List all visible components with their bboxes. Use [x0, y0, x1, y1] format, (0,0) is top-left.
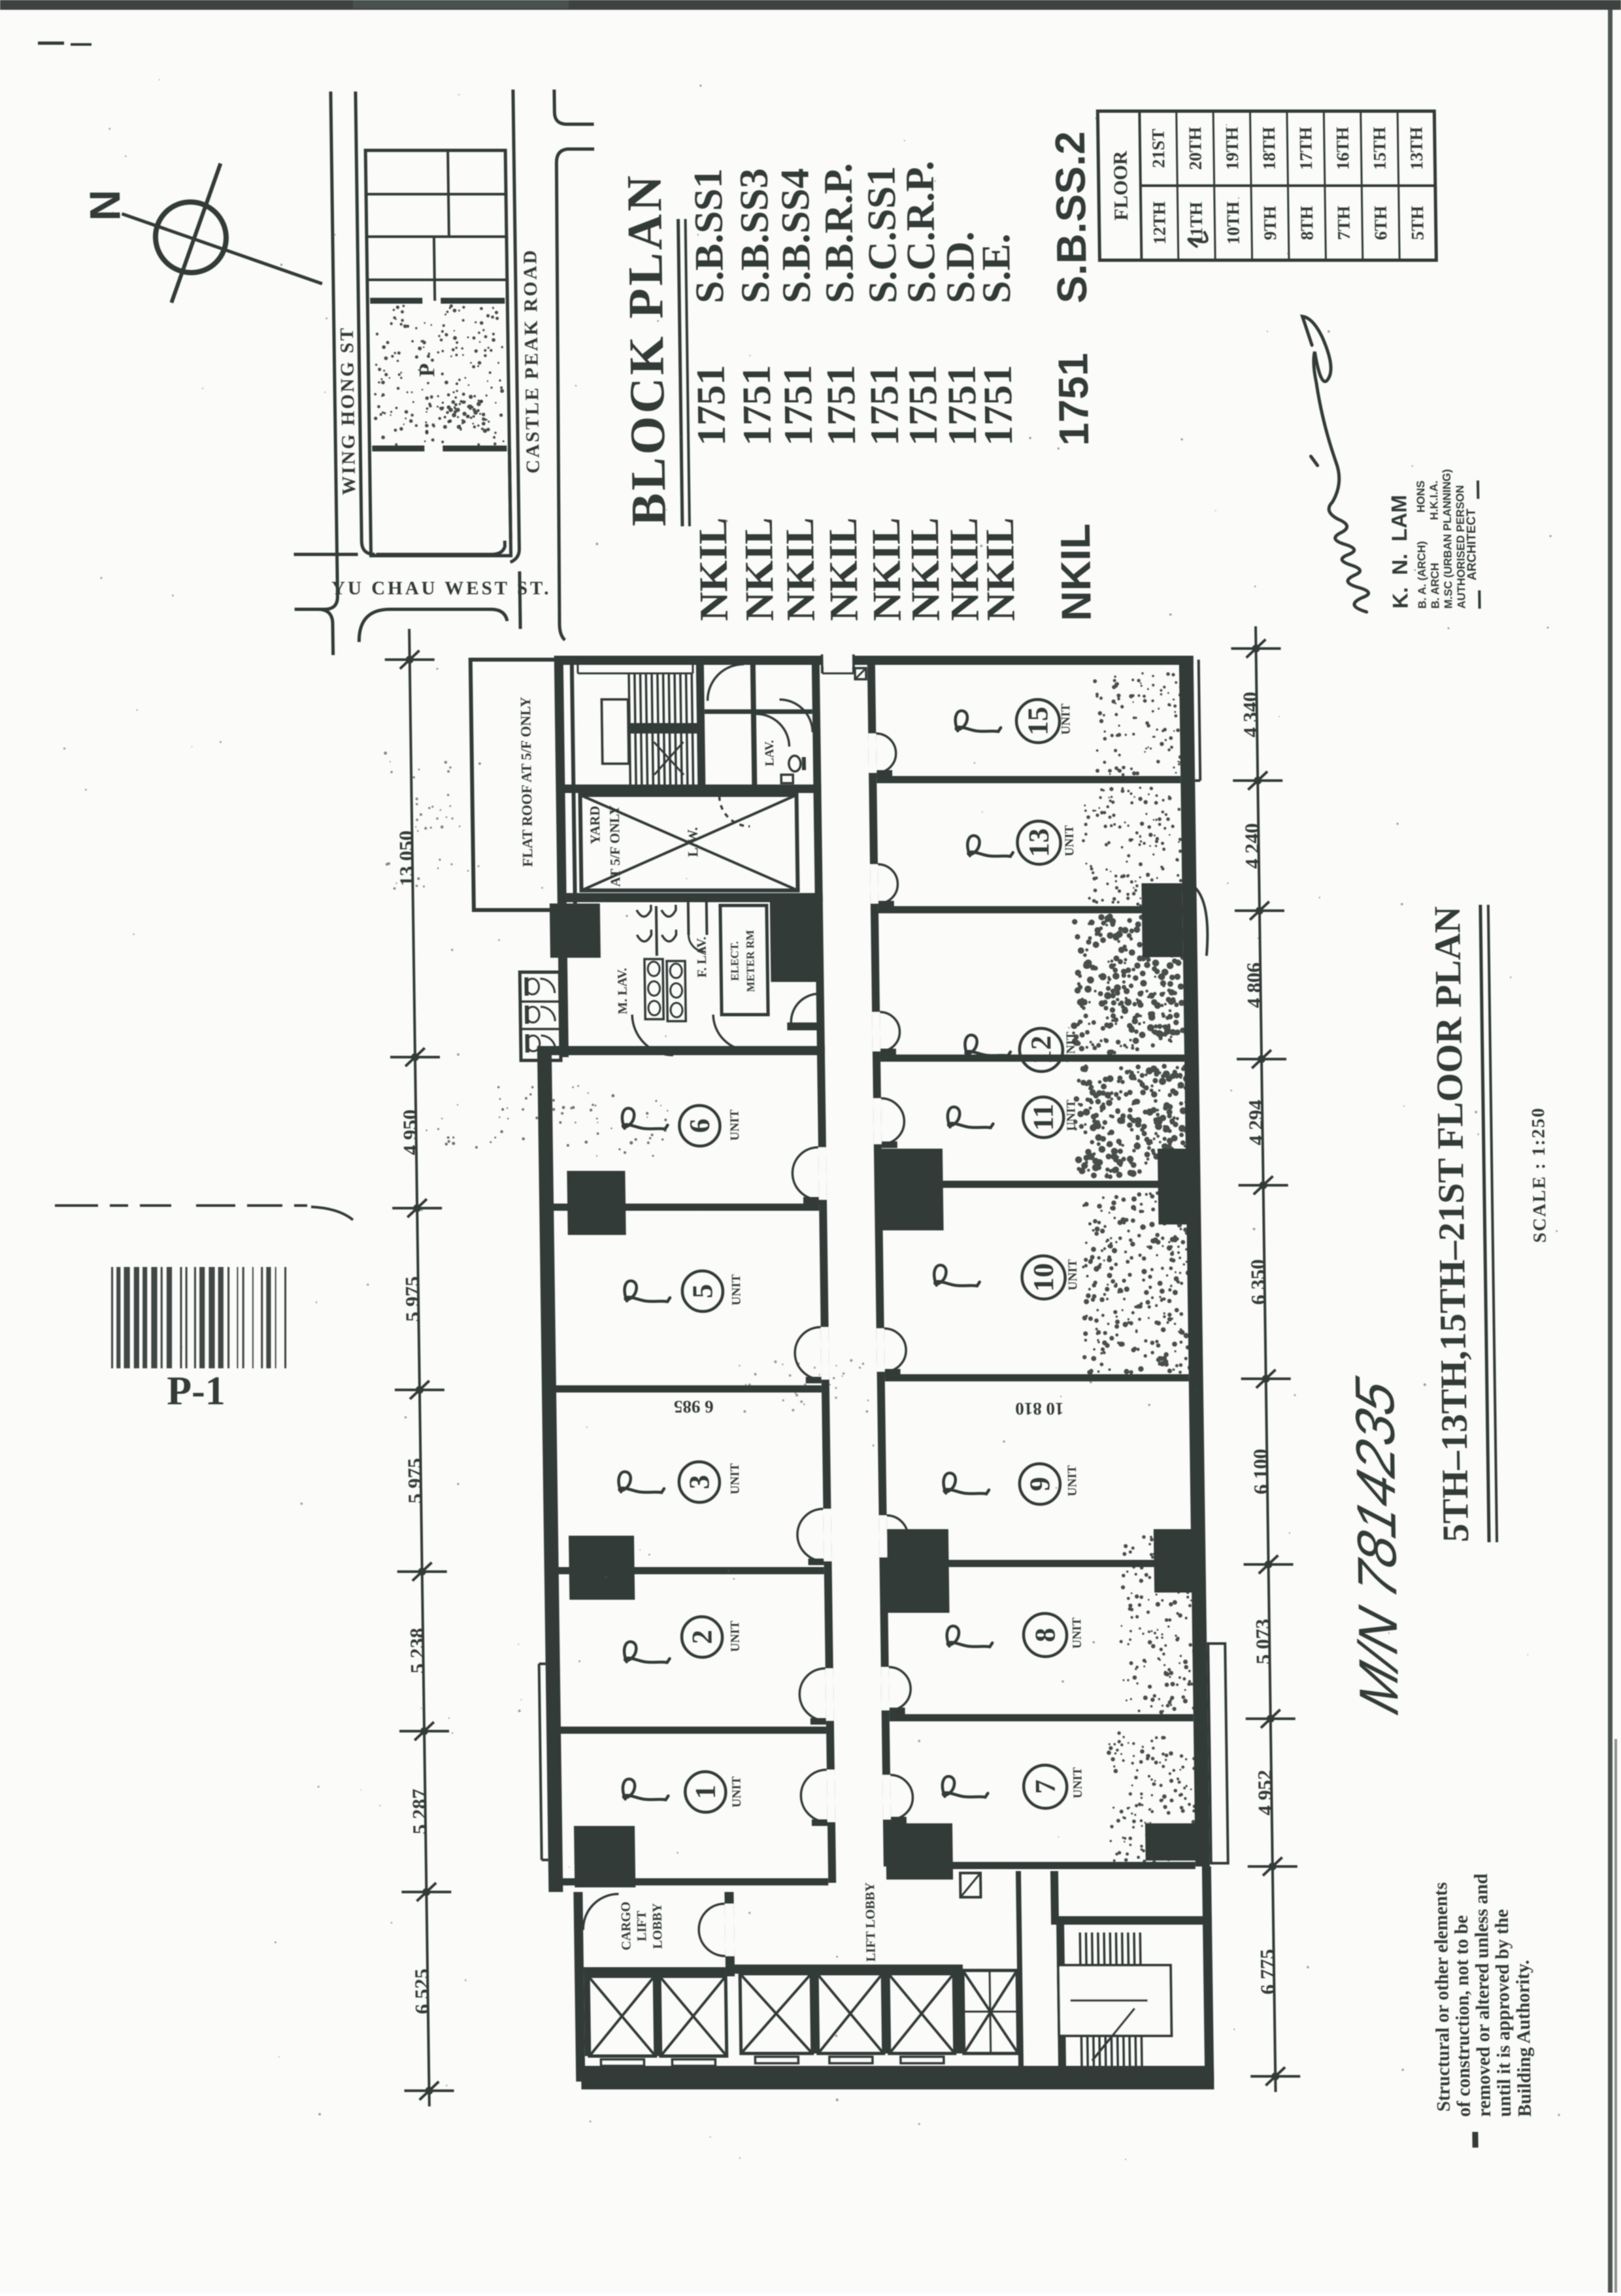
- svg-text:NKIL: NKIL: [1052, 524, 1100, 621]
- svg-text:5TH–13TH,15TH–21ST FLOOR PLAN: 5TH–13TH,15TH–21ST FLOOR PLAN: [1427, 906, 1477, 1542]
- svg-text:16TH: 16TH: [1333, 127, 1353, 170]
- svg-text:UNIT: UNIT: [1059, 703, 1073, 735]
- svg-text:1751: 1751: [901, 365, 946, 446]
- svg-text:B. A. (ARCH): B. A. (ARCH): [1415, 541, 1428, 609]
- svg-text:5 238: 5 238: [405, 1628, 429, 1674]
- svg-text:CASTLE PEAK ROAD: CASTLE PEAK ROAD: [520, 248, 544, 473]
- svg-text:S.E.: S.E.: [974, 233, 1019, 303]
- svg-text:L.W.: L.W.: [684, 827, 701, 857]
- svg-text:NKIL: NKIL: [691, 518, 737, 621]
- svg-text:S.C.R.P.: S.C.R.P.: [897, 161, 944, 303]
- svg-text:METER RM: METER RM: [744, 930, 757, 992]
- svg-text:LIFT: LIFT: [635, 1910, 650, 1941]
- svg-text:UNIT: UNIT: [1063, 825, 1077, 856]
- svg-text:4 240: 4 240: [1241, 823, 1264, 869]
- svg-text:UNIT: UNIT: [728, 1621, 743, 1652]
- svg-text:YARD: YARD: [587, 806, 603, 845]
- svg-text:15TH: 15TH: [1369, 127, 1390, 170]
- svg-text:4 950: 4 950: [399, 1109, 422, 1155]
- svg-text:NKIL: NKIL: [737, 518, 782, 621]
- svg-text:UNIT: UNIT: [729, 1274, 744, 1306]
- svg-text:B. ARCH: B. ARCH: [1429, 563, 1442, 609]
- svg-text:9: 9: [1024, 1477, 1056, 1491]
- svg-text:18TH: 18TH: [1259, 127, 1279, 170]
- svg-text:6 350: 6 350: [1246, 1259, 1270, 1305]
- svg-text:HONS: HONS: [1414, 481, 1428, 513]
- svg-text:4 340: 4 340: [1239, 692, 1262, 737]
- svg-text:5 287: 5 287: [408, 1789, 431, 1834]
- svg-text:6TH: 6TH: [1371, 206, 1391, 241]
- svg-text:FLAT ROOF AT 5/F ONLY: FLAT ROOF AT 5/F ONLY: [517, 697, 536, 867]
- svg-text:5TH: 5TH: [1407, 206, 1428, 241]
- svg-text:1751: 1751: [976, 365, 1022, 446]
- svg-text:S.B.SS4: S.B.SS4: [773, 168, 820, 303]
- svg-text:UNIT: UNIT: [1071, 1767, 1085, 1798]
- svg-text:1751: 1751: [735, 365, 780, 446]
- svg-text:UNIT: UNIT: [1065, 1465, 1080, 1496]
- svg-text:NKIL: NKIL: [978, 518, 1024, 621]
- svg-text:SCALE : 1:250: SCALE : 1:250: [1528, 1107, 1550, 1243]
- svg-text:8: 8: [1029, 1628, 1061, 1642]
- svg-text:FLOOR: FLOOR: [1110, 150, 1132, 220]
- svg-text:until it is approved by the: until it is approved by the: [1492, 1909, 1515, 2117]
- svg-text:6 100: 6 100: [1249, 1449, 1273, 1494]
- svg-text:UNIT: UNIT: [1064, 1100, 1078, 1131]
- svg-text:10 810: 10 810: [1015, 1399, 1064, 1419]
- svg-text:1751: 1751: [819, 365, 865, 446]
- svg-text:H.K.I.A.: H.K.I.A.: [1428, 481, 1441, 520]
- svg-text:12: 12: [1025, 1036, 1058, 1064]
- svg-text:NKIL: NKIL: [821, 518, 867, 621]
- svg-text:S.B.SS3: S.B.SS3: [732, 168, 778, 303]
- svg-text:BLOCK PLAN: BLOCK PLAN: [617, 173, 677, 526]
- svg-text:YU CHAU WEST ST.: YU CHAU WEST ST.: [331, 578, 552, 599]
- svg-text:1: 1: [690, 1785, 722, 1799]
- svg-text:15: 15: [1022, 707, 1054, 735]
- svg-text:5: 5: [686, 1284, 718, 1298]
- svg-text:13TH: 13TH: [1406, 127, 1426, 170]
- svg-text:7TH: 7TH: [1333, 206, 1354, 241]
- svg-text:1751: 1751: [776, 365, 822, 446]
- svg-text:10TH: 10TH: [1223, 201, 1243, 245]
- svg-text:13 050: 13 050: [395, 830, 418, 886]
- svg-text:UNIT: UNIT: [1070, 1617, 1084, 1649]
- svg-text:3: 3: [683, 1475, 715, 1489]
- svg-text:Building Authority.: Building Authority.: [1512, 1960, 1535, 2117]
- svg-text:LAV.: LAV.: [763, 740, 777, 766]
- svg-text:P-1: P-1: [167, 1369, 226, 1413]
- svg-text:6 775: 6 775: [1256, 1949, 1279, 1995]
- svg-text:5 975: 5 975: [403, 1458, 427, 1504]
- svg-text:M.SC (URBAN PLANNING): M.SC (URBAN PLANNING): [1441, 469, 1455, 609]
- svg-text:1751: 1751: [1049, 353, 1097, 446]
- svg-text:S.B.R.P.: S.B.R.P.: [816, 163, 862, 303]
- svg-text:6 525: 6 525: [410, 1968, 433, 2014]
- svg-text:6: 6: [684, 1119, 716, 1133]
- svg-text:7: 7: [1029, 1780, 1061, 1794]
- svg-text:ELECT.: ELECT.: [728, 941, 741, 981]
- svg-text:17TH: 17TH: [1295, 127, 1316, 170]
- svg-text:UNIT: UNIT: [729, 1776, 744, 1808]
- svg-text:5 073: 5 073: [1251, 1619, 1275, 1664]
- svg-text:K. N. LAM: K. N. LAM: [1386, 495, 1412, 609]
- svg-text:6 985: 6 985: [674, 1397, 714, 1417]
- svg-text:20TH: 20TH: [1185, 127, 1205, 170]
- svg-text:12TH: 12TH: [1149, 201, 1169, 245]
- svg-text:N: N: [80, 190, 129, 221]
- svg-text:5 975: 5 975: [401, 1276, 424, 1322]
- svg-text:11: 11: [1027, 1104, 1060, 1131]
- svg-text:F. LAV.: F. LAV.: [695, 937, 710, 977]
- svg-text:M. LAV.: M. LAV.: [615, 968, 630, 1015]
- svg-text:LOBBY: LOBBY: [650, 1902, 665, 1949]
- svg-text:19TH: 19TH: [1222, 127, 1242, 170]
- svg-text:UNIT: UNIT: [728, 1109, 743, 1141]
- svg-text:WING HONG ST: WING HONG ST: [337, 326, 360, 495]
- svg-text:4 952: 4 952: [1253, 1770, 1277, 1815]
- svg-text:9TH: 9TH: [1260, 206, 1280, 241]
- svg-text:UNIT: UNIT: [728, 1463, 743, 1494]
- svg-text:4 294: 4 294: [1244, 1100, 1267, 1145]
- svg-text:13: 13: [1023, 828, 1056, 857]
- svg-text:CARGO: CARGO: [619, 1902, 634, 1950]
- svg-text:LIFT LOBBY: LIFT LOBBY: [863, 1882, 878, 1962]
- svg-text:2: 2: [686, 1630, 718, 1644]
- svg-text:UNIT: UNIT: [1066, 1259, 1080, 1291]
- svg-text:S.B.SS1: S.B.SS1: [686, 168, 733, 303]
- svg-text:NKIL: NKIL: [778, 518, 824, 621]
- svg-text:M/N 7814235: M/N 7814235: [1345, 1371, 1411, 1721]
- svg-text:10: 10: [1028, 1263, 1060, 1292]
- svg-text:AT 5/F ONLY: AT 5/F ONLY: [607, 805, 624, 887]
- svg-text:S.B.SS.2: S.B.SS.2: [1046, 131, 1096, 303]
- svg-text:1751: 1751: [689, 365, 735, 446]
- svg-text:21ST: 21ST: [1148, 129, 1169, 168]
- svg-text:ARCHITECT: ARCHITECT: [1465, 509, 1479, 581]
- svg-text:4 806: 4 806: [1243, 962, 1266, 1008]
- svg-text:8TH: 8TH: [1297, 206, 1317, 241]
